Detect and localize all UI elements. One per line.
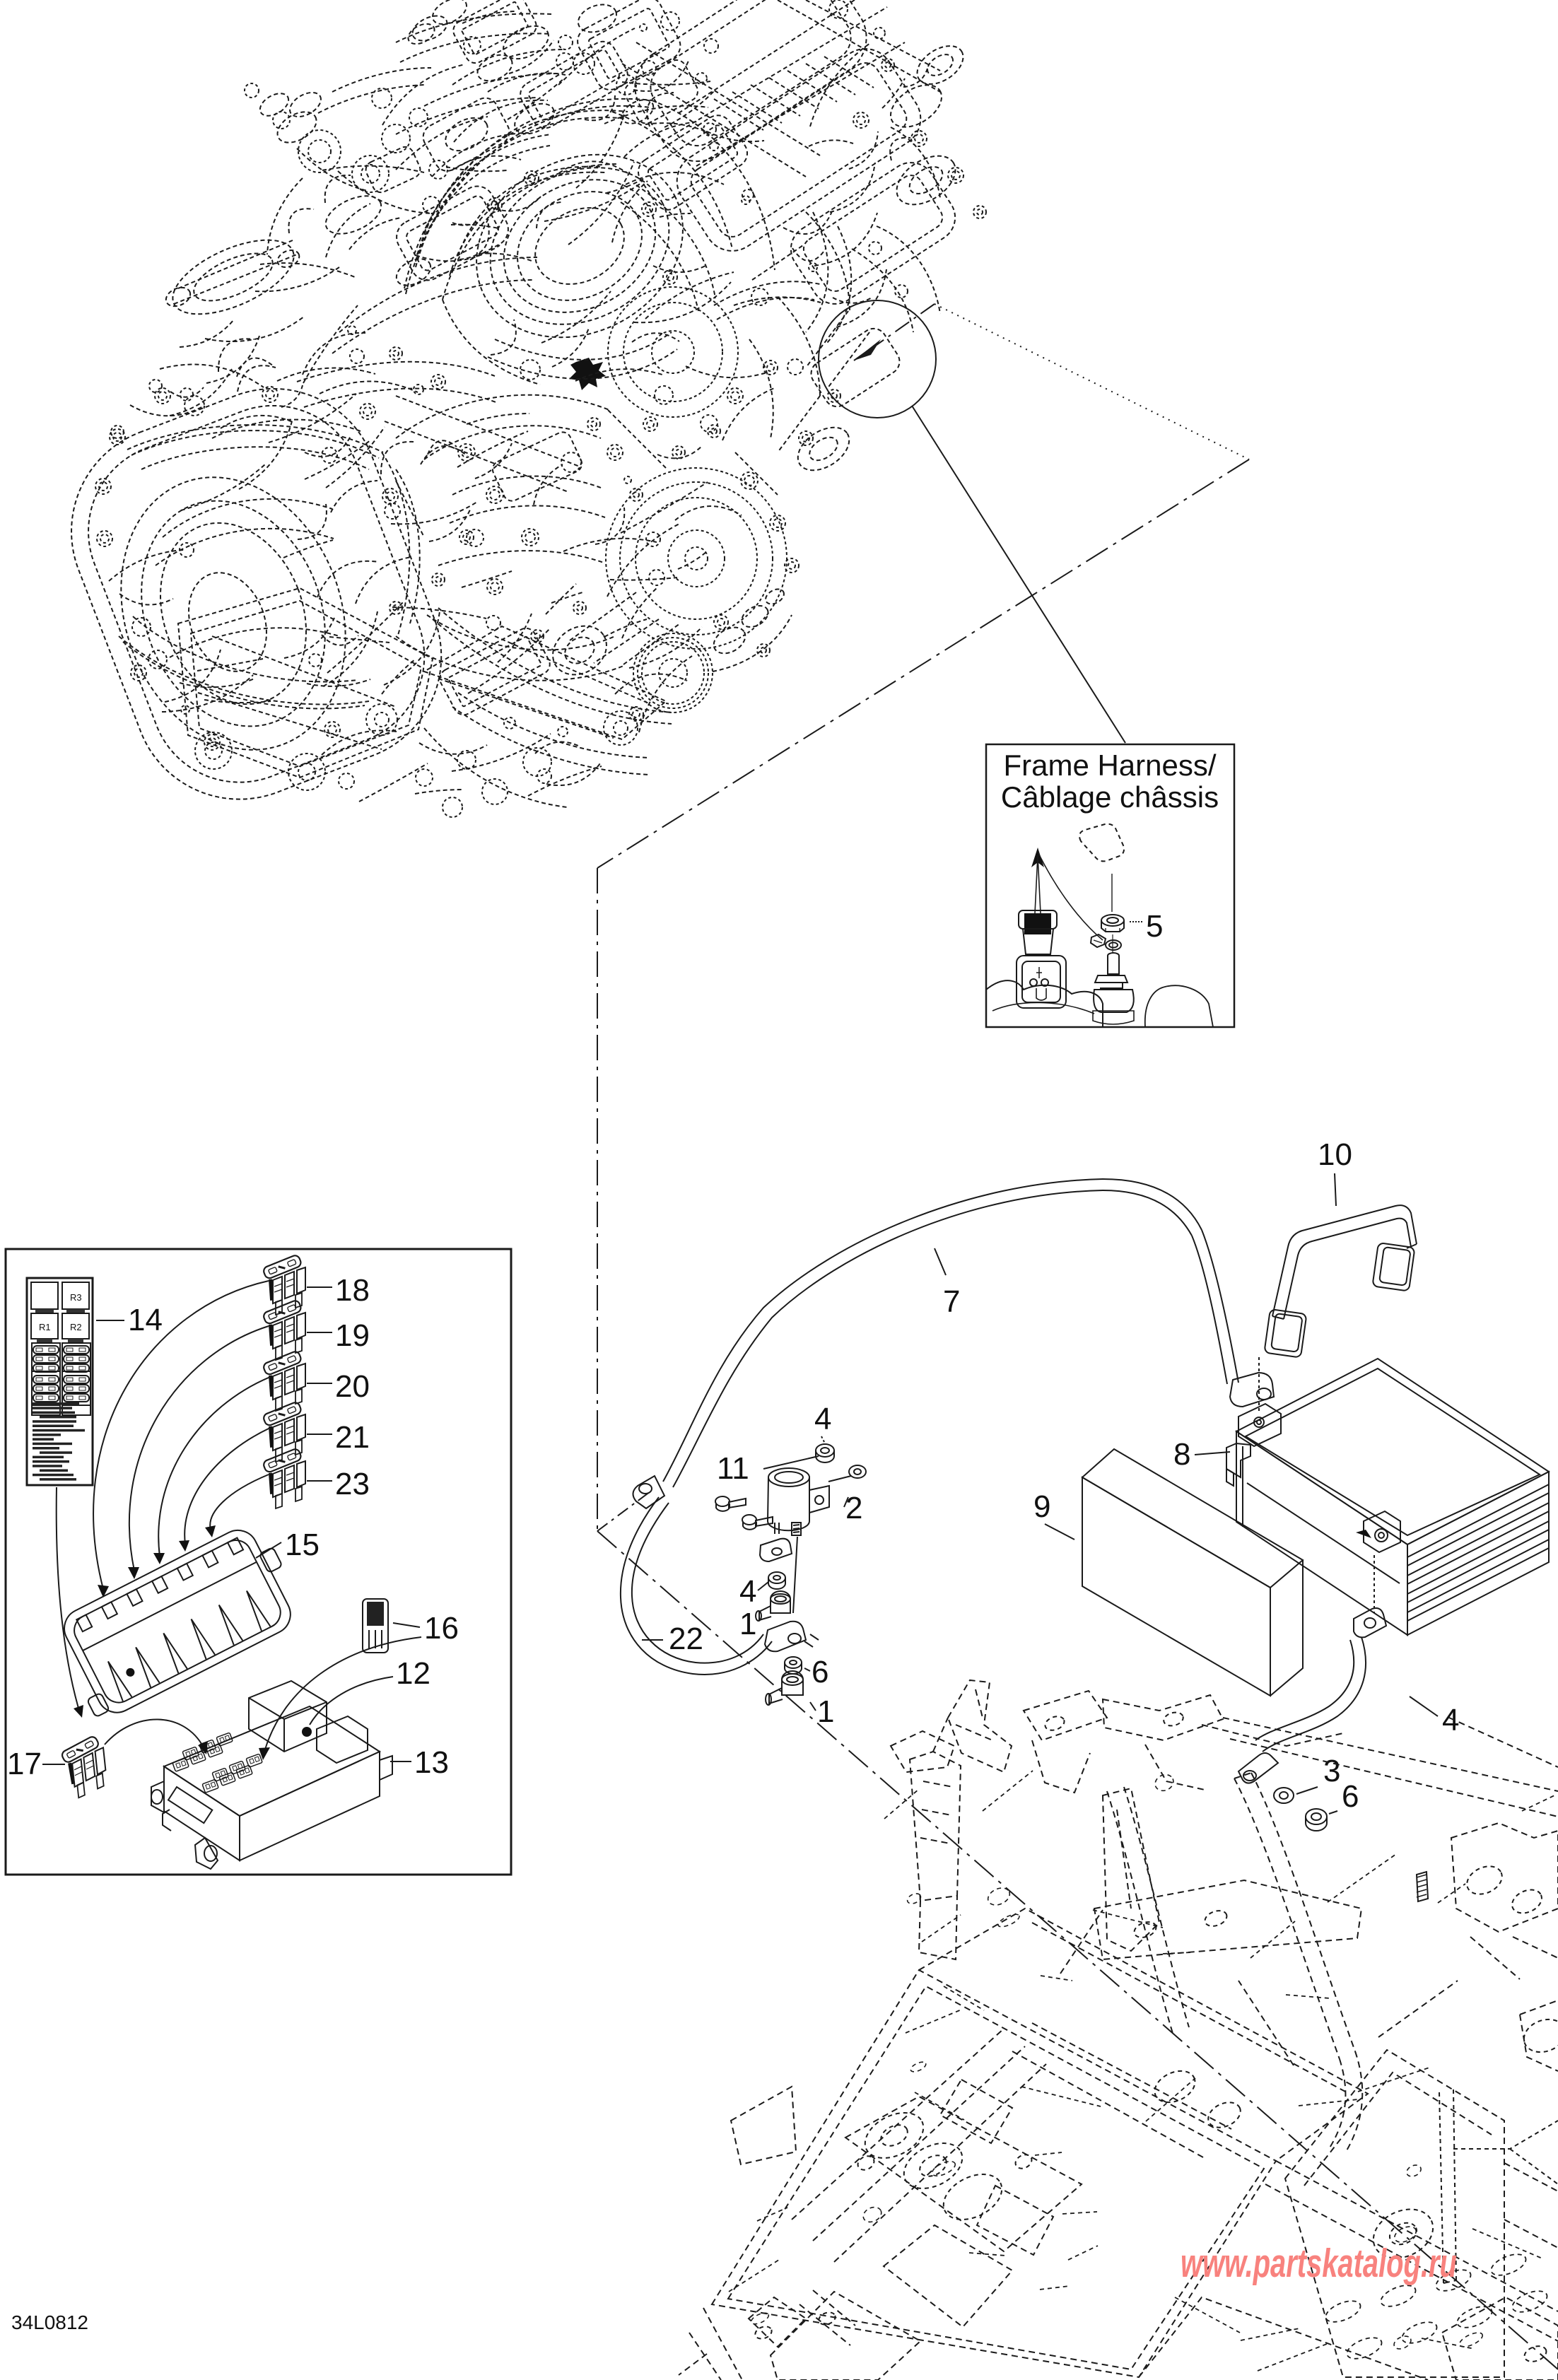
svg-text:15: 15 [285, 1528, 320, 1562]
svg-text:20: 20 [335, 1369, 370, 1404]
svg-text:4: 4 [739, 1574, 756, 1609]
svg-text:6: 6 [1342, 1779, 1359, 1814]
svg-text:16: 16 [424, 1611, 459, 1646]
svg-text:www.partskatalog.ru: www.partskatalog.ru [1181, 2241, 1457, 2286]
svg-text:3: 3 [1323, 1754, 1340, 1788]
svg-text:9: 9 [1033, 1489, 1050, 1524]
svg-text:4: 4 [1442, 1703, 1459, 1737]
svg-text:22: 22 [669, 1622, 703, 1656]
svg-text:Frame Harness/: Frame Harness/ [1003, 749, 1216, 782]
svg-text:1: 1 [817, 1694, 834, 1729]
svg-text:12: 12 [396, 1656, 430, 1691]
svg-text:13: 13 [414, 1745, 449, 1780]
svg-text:23: 23 [335, 1467, 370, 1501]
svg-text:8: 8 [1173, 1437, 1190, 1472]
svg-text:21: 21 [335, 1420, 370, 1455]
svg-text:10: 10 [1318, 1137, 1352, 1172]
svg-text:18: 18 [335, 1273, 370, 1308]
svg-text:11: 11 [717, 1451, 749, 1486]
svg-text:R2: R2 [70, 1322, 82, 1332]
svg-text:17: 17 [7, 1747, 42, 1781]
svg-text:34L0812: 34L0812 [11, 2311, 88, 2333]
svg-text:1: 1 [739, 1607, 756, 1641]
svg-text:6: 6 [812, 1655, 828, 1689]
svg-text:19: 19 [335, 1318, 370, 1353]
svg-text:Câblage châssis: Câblage châssis [1001, 780, 1219, 814]
svg-text:7: 7 [943, 1284, 960, 1319]
svg-text:4: 4 [814, 1402, 831, 1436]
svg-text:R1: R1 [39, 1322, 51, 1332]
svg-text:14: 14 [128, 1303, 163, 1337]
svg-text:5: 5 [1146, 909, 1163, 944]
svg-text:2: 2 [845, 1491, 862, 1525]
svg-text:R3: R3 [70, 1292, 82, 1303]
